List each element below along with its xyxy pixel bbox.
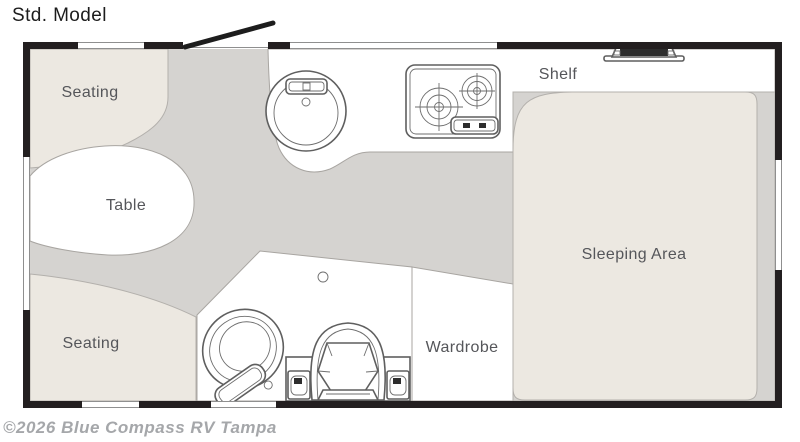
window-left <box>23 157 30 310</box>
entry-door <box>183 23 273 48</box>
two-burner-cooktop <box>406 65 500 138</box>
roof-vent <box>604 48 684 61</box>
window-bottom-bath <box>211 401 276 408</box>
window-top-left <box>78 42 144 49</box>
floorplan-svg: Seating Table Seating Shelf Sleeping Are… <box>0 0 800 442</box>
round-sink <box>266 71 346 151</box>
floorplan-page: Std. Model <box>0 0 800 442</box>
label-seating-front: Seating <box>61 84 118 101</box>
wardrobe-region <box>412 267 513 401</box>
label-sleeping-area: Sleeping Area <box>582 246 687 263</box>
speaker-box-left <box>288 371 310 399</box>
label-table: Table <box>106 197 146 214</box>
dealer-watermark: ©2026 Blue Compass RV Tampa <box>3 418 277 438</box>
speaker-box-right <box>387 371 409 399</box>
window-right <box>775 160 782 270</box>
label-wardrobe: Wardrobe <box>426 339 499 356</box>
label-shelf: Shelf <box>539 66 578 83</box>
label-seating-rear: Seating <box>62 335 119 352</box>
window-top-kitchen <box>290 42 497 49</box>
window-bottom-left <box>82 401 139 408</box>
